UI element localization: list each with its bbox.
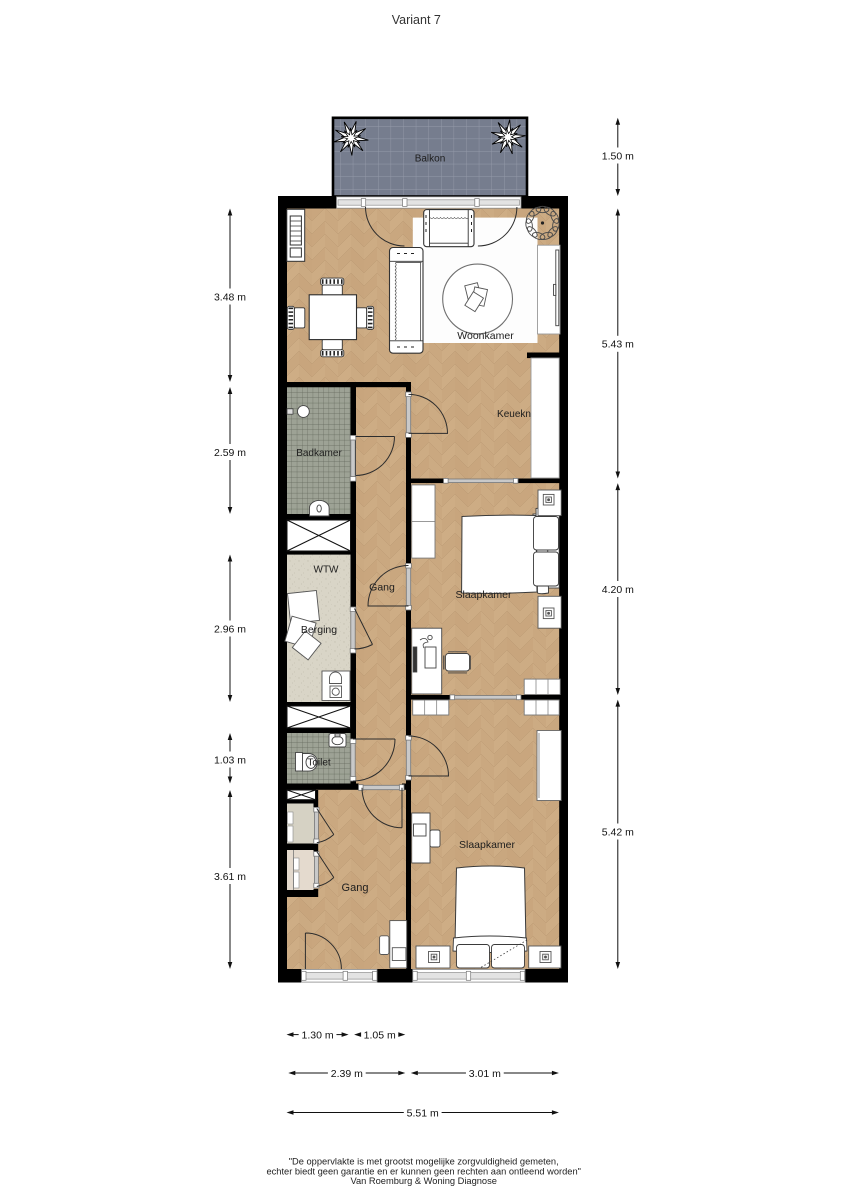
svg-text:Keuekn: Keuekn xyxy=(497,409,531,420)
svg-text:4.20 m: 4.20 m xyxy=(602,584,634,596)
svg-text:2.96 m: 2.96 m xyxy=(214,623,246,635)
svg-text:Variant 7: Variant 7 xyxy=(392,13,441,27)
svg-text:3.61 m: 3.61 m xyxy=(214,871,246,883)
svg-text:1.03 m: 1.03 m xyxy=(214,754,246,766)
svg-text:3.48 m: 3.48 m xyxy=(214,291,246,303)
svg-text:5.43 m: 5.43 m xyxy=(602,339,634,351)
svg-text:1.05 m: 1.05 m xyxy=(364,1029,396,1041)
svg-text:WTW: WTW xyxy=(314,565,340,576)
svg-text:Woonkamer: Woonkamer xyxy=(457,330,514,342)
svg-text:echter biedt geen garantie en: echter biedt geen garantie en er kunnen … xyxy=(266,1166,580,1176)
svg-text:Gang: Gang xyxy=(342,882,369,894)
svg-text:3.01 m: 3.01 m xyxy=(469,1068,501,1080)
svg-text:Gang: Gang xyxy=(369,582,395,594)
svg-text:Berging: Berging xyxy=(301,624,337,636)
svg-text:Toilet: Toilet xyxy=(307,758,331,769)
svg-text:5.51 m: 5.51 m xyxy=(407,1107,439,1119)
svg-text:Van Roemburg & Woning Diagnose: Van Roemburg & Woning Diagnose xyxy=(350,1176,496,1186)
svg-text:5.42 m: 5.42 m xyxy=(602,826,634,838)
svg-text:Balkon: Balkon xyxy=(415,154,446,165)
svg-text:Slaapkamer: Slaapkamer xyxy=(455,589,512,601)
svg-text:"De oppervlakte is met grootst: "De oppervlakte is met grootst mogelijke… xyxy=(289,1157,559,1167)
svg-text:2.39 m: 2.39 m xyxy=(331,1068,363,1080)
svg-text:Slaapkamer: Slaapkamer xyxy=(459,839,516,851)
svg-text:Badkamer: Badkamer xyxy=(296,448,342,459)
svg-text:1.50 m: 1.50 m xyxy=(602,150,634,162)
svg-text:2.59 m: 2.59 m xyxy=(214,447,246,459)
svg-text:1.30 m: 1.30 m xyxy=(301,1029,333,1041)
